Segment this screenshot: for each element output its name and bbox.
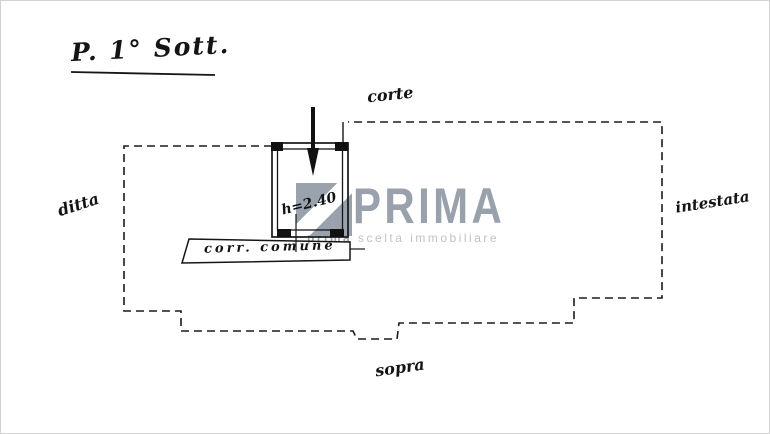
entrance-arrow-head-icon	[307, 148, 319, 176]
scanned-floor-plan-page: PRIMA prima scelta immobiliare P. 1° Sot…	[0, 0, 770, 434]
title-underline	[71, 72, 215, 75]
wall-pier	[271, 142, 283, 151]
wall-pier	[277, 229, 291, 237]
wall-pier	[335, 142, 348, 151]
wall-pier	[330, 229, 344, 237]
boundary-dashed-outline	[124, 122, 662, 339]
